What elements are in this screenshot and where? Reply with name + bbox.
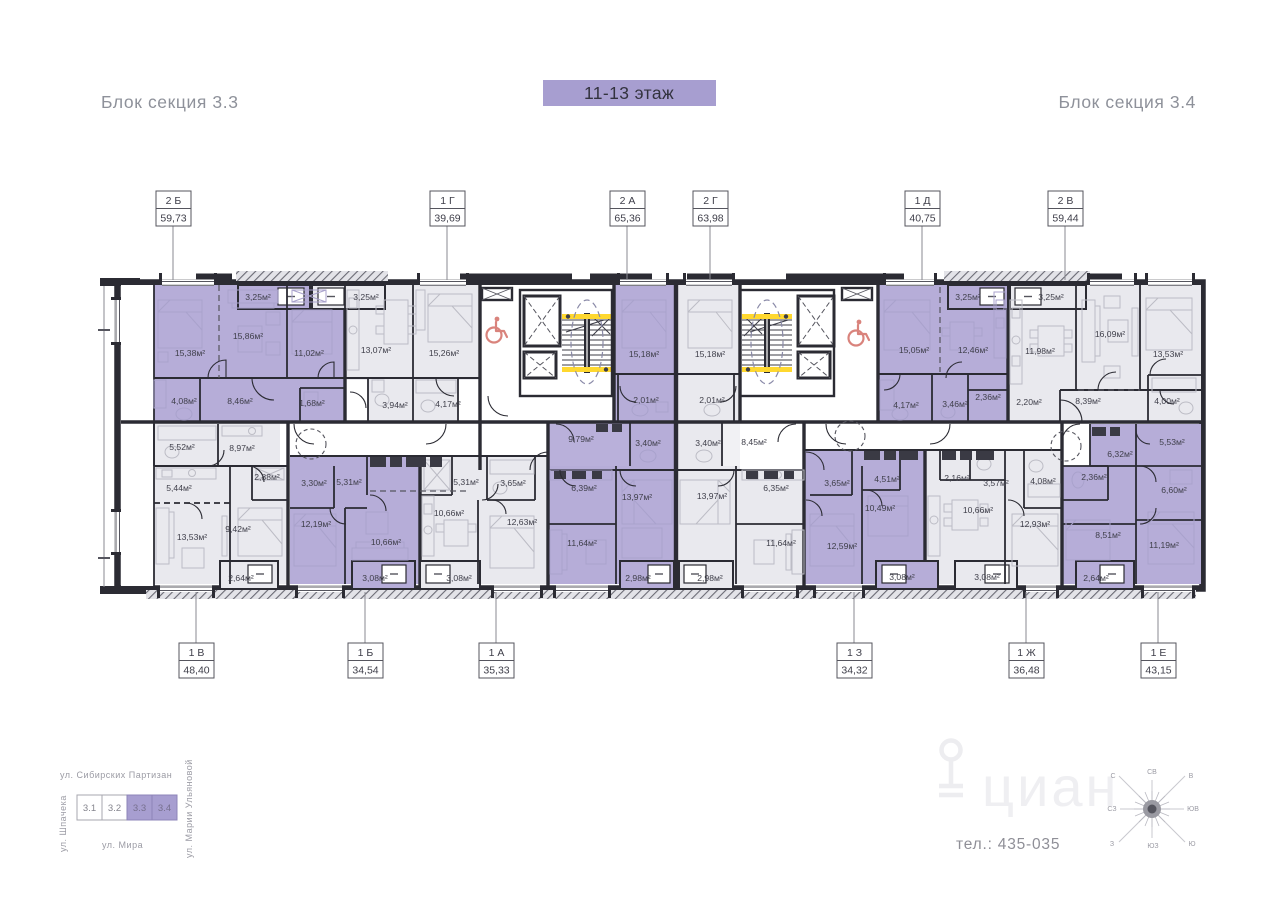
- svg-text:2 Г: 2 Г: [703, 195, 718, 207]
- svg-text:3,65м²: 3,65м²: [500, 478, 526, 488]
- svg-text:З: З: [1110, 841, 1114, 848]
- svg-text:4,17м²: 4,17м²: [893, 400, 919, 410]
- svg-text:1 А: 1 А: [489, 647, 505, 659]
- svg-text:Блок секция 3.4: Блок секция 3.4: [1058, 92, 1196, 112]
- svg-text:3.1: 3.1: [83, 803, 96, 814]
- svg-text:тел.: 435-035: тел.: 435-035: [956, 836, 1060, 853]
- svg-text:2,88м²: 2,88м²: [254, 472, 280, 482]
- svg-text:5,52м²: 5,52м²: [169, 442, 195, 452]
- svg-text:2,36м²: 2,36м²: [1081, 472, 1107, 482]
- svg-text:3.4: 3.4: [158, 803, 171, 814]
- svg-text:11,02м²: 11,02м²: [294, 348, 324, 358]
- svg-text:15,18м²: 15,18м²: [629, 349, 659, 359]
- svg-text:4,17м²: 4,17м²: [435, 399, 461, 409]
- svg-text:3,08м²: 3,08м²: [974, 572, 1000, 582]
- svg-text:Блок секция 3.3: Блок секция 3.3: [101, 92, 239, 112]
- svg-text:11-13 этаж: 11-13 этаж: [584, 83, 674, 103]
- svg-text:1 Г: 1 Г: [440, 195, 455, 207]
- svg-text:3,25м²: 3,25м²: [955, 292, 981, 302]
- svg-text:3,08м²: 3,08м²: [362, 573, 388, 583]
- svg-text:13,97м²: 13,97м²: [622, 492, 652, 502]
- svg-text:16,09м²: 16,09м²: [1095, 329, 1125, 339]
- svg-text:15,38м²: 15,38м²: [175, 348, 205, 358]
- svg-text:2 А: 2 А: [620, 195, 636, 207]
- svg-text:1,68м²: 1,68м²: [299, 398, 325, 408]
- svg-text:5,44м²: 5,44м²: [166, 483, 192, 493]
- svg-text:2,64м²: 2,64м²: [228, 573, 254, 583]
- svg-text:15,86м²: 15,86м²: [233, 331, 263, 341]
- svg-text:1 Е: 1 Е: [1151, 647, 1167, 659]
- svg-text:13,53м²: 13,53м²: [1153, 349, 1183, 359]
- svg-text:ул. Марии Ульяновой: ул. Марии Ульяновой: [184, 759, 194, 858]
- svg-text:ул. Мира: ул. Мира: [102, 840, 143, 850]
- svg-text:8,46м²: 8,46м²: [227, 396, 253, 406]
- svg-text:1 Ж: 1 Ж: [1017, 647, 1036, 659]
- svg-text:1 Д: 1 Д: [915, 195, 931, 207]
- svg-text:9,79м²: 9,79м²: [568, 434, 594, 444]
- svg-text:13,97м²: 13,97м²: [697, 491, 727, 501]
- svg-text:3,57м²: 3,57м²: [983, 478, 1009, 488]
- svg-text:3,40м²: 3,40м²: [635, 438, 661, 448]
- svg-text:13,07м²: 13,07м²: [361, 345, 391, 355]
- svg-text:12,59м²: 12,59м²: [827, 541, 857, 551]
- svg-text:3,08м²: 3,08м²: [889, 572, 915, 582]
- svg-text:2,98м²: 2,98м²: [697, 573, 723, 583]
- svg-text:10,66м²: 10,66м²: [434, 508, 464, 518]
- svg-text:35,33: 35,33: [483, 665, 509, 677]
- svg-text:3,30м²: 3,30м²: [301, 478, 327, 488]
- svg-text:10,66м²: 10,66м²: [963, 505, 993, 515]
- svg-text:8,39м²: 8,39м²: [1075, 396, 1101, 406]
- svg-text:3,08м²: 3,08м²: [446, 573, 472, 583]
- svg-text:34,32: 34,32: [841, 665, 867, 677]
- svg-text:3,65м²: 3,65м²: [824, 478, 850, 488]
- svg-text:11,19м²: 11,19м²: [1149, 540, 1179, 550]
- svg-text:1 Б: 1 Б: [358, 647, 374, 659]
- svg-text:3,94м²: 3,94м²: [382, 400, 408, 410]
- svg-text:8,45м²: 8,45м²: [741, 437, 767, 447]
- svg-text:2,64м²: 2,64м²: [1083, 573, 1109, 583]
- svg-text:4,08м²: 4,08м²: [1030, 476, 1056, 486]
- svg-text:В: В: [1189, 773, 1194, 780]
- svg-text:11,98м²: 11,98м²: [1025, 346, 1055, 356]
- svg-text:6,39м²: 6,39м²: [571, 483, 597, 493]
- svg-text:3,25м²: 3,25м²: [353, 292, 379, 302]
- svg-text:2,01м²: 2,01м²: [699, 395, 725, 405]
- svg-text:59,44: 59,44: [1052, 213, 1078, 225]
- svg-text:11,64м²: 11,64м²: [567, 538, 597, 548]
- svg-text:6,35м²: 6,35м²: [763, 483, 789, 493]
- svg-text:5,53м²: 5,53м²: [1159, 437, 1185, 447]
- svg-text:40,75: 40,75: [909, 213, 935, 225]
- svg-text:6,32м²: 6,32м²: [1107, 449, 1133, 459]
- svg-text:12,93м²: 12,93м²: [1020, 519, 1050, 529]
- svg-text:3,46м²: 3,46м²: [942, 399, 968, 409]
- svg-text:3,25м²: 3,25м²: [245, 292, 271, 302]
- svg-text:65,36: 65,36: [614, 213, 640, 225]
- svg-text:2,20м²: 2,20м²: [1016, 397, 1042, 407]
- svg-text:10,66м²: 10,66м²: [371, 537, 401, 547]
- svg-text:36,48: 36,48: [1013, 665, 1039, 677]
- svg-text:4,51м²: 4,51м²: [874, 474, 900, 484]
- svg-text:ул. Сибирских Партизан: ул. Сибирских Партизан: [60, 770, 172, 780]
- svg-text:15,05м²: 15,05м²: [899, 345, 929, 355]
- svg-text:ЮЗ: ЮЗ: [1147, 843, 1158, 850]
- svg-text:12,46м²: 12,46м²: [958, 345, 988, 355]
- svg-text:11,64м²: 11,64м²: [766, 538, 796, 548]
- svg-text:6,60м²: 6,60м²: [1161, 485, 1187, 495]
- svg-text:3,25м²: 3,25м²: [1038, 292, 1064, 302]
- svg-text:2,36м²: 2,36м²: [975, 392, 1001, 402]
- svg-text:СЗ: СЗ: [1107, 806, 1116, 813]
- svg-text:2 В: 2 В: [1058, 195, 1074, 207]
- svg-text:2,16м²: 2,16м²: [944, 473, 970, 483]
- svg-text:2 Б: 2 Б: [166, 195, 182, 207]
- svg-text:12,63м²: 12,63м²: [507, 517, 537, 527]
- svg-text:1 В: 1 В: [189, 647, 205, 659]
- svg-text:1 З: 1 З: [847, 647, 862, 659]
- svg-text:ЮВ: ЮВ: [1187, 806, 1199, 813]
- svg-text:8,51м²: 8,51м²: [1095, 530, 1121, 540]
- svg-text:48,40: 48,40: [183, 665, 209, 677]
- svg-text:ул. Шпачека: ул. Шпачека: [58, 795, 68, 852]
- svg-text:15,18м²: 15,18м²: [695, 349, 725, 359]
- svg-text:С: С: [1110, 773, 1115, 780]
- svg-text:9,42м²: 9,42м²: [225, 524, 251, 534]
- svg-text:3,40м²: 3,40м²: [695, 438, 721, 448]
- svg-text:3.3: 3.3: [133, 803, 146, 814]
- svg-text:5,31м²: 5,31м²: [453, 477, 479, 487]
- svg-text:СВ: СВ: [1147, 769, 1157, 776]
- svg-text:5,31м²: 5,31м²: [336, 477, 362, 487]
- svg-text:циан: циан: [982, 755, 1119, 818]
- svg-text:2,98м²: 2,98м²: [625, 573, 651, 583]
- svg-text:63,98: 63,98: [697, 213, 723, 225]
- svg-text:2,01м²: 2,01м²: [633, 395, 659, 405]
- svg-text:39,69: 39,69: [434, 213, 460, 225]
- svg-text:10,49м²: 10,49м²: [865, 503, 895, 513]
- svg-text:59,73: 59,73: [160, 213, 186, 225]
- svg-text:43,15: 43,15: [1145, 665, 1171, 677]
- svg-text:13,53м²: 13,53м²: [177, 532, 207, 542]
- svg-text:Ю: Ю: [1188, 841, 1195, 848]
- svg-text:15,26м²: 15,26м²: [429, 348, 459, 358]
- svg-text:4,00м²: 4,00м²: [1154, 396, 1180, 406]
- svg-text:12,19м²: 12,19м²: [301, 519, 331, 529]
- svg-text:3.2: 3.2: [108, 803, 121, 814]
- svg-text:8,97м²: 8,97м²: [229, 443, 255, 453]
- svg-text:34,54: 34,54: [352, 665, 378, 677]
- svg-text:4,08м²: 4,08м²: [171, 396, 197, 406]
